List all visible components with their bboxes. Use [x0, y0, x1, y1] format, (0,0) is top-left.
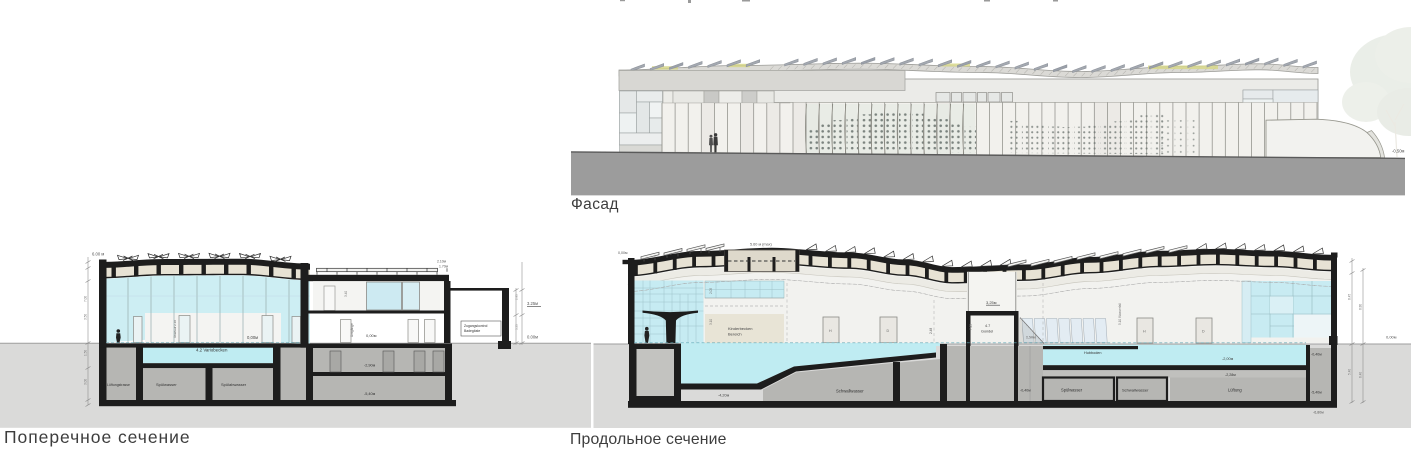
svg-text:Schwallwasser: Schwallwasser: [1122, 388, 1149, 393]
svg-text:-5,40м: -5,40м: [1311, 391, 1322, 395]
svg-text:Lüftungstrasse: Lüftungstrasse: [107, 383, 130, 387]
svg-text:-0,40м: -0,40м: [1311, 353, 1322, 357]
svg-text:-4,20м: -4,20м: [718, 394, 730, 398]
svg-text:Schwallwasser: Schwallwasser: [836, 389, 864, 394]
svg-text:7.00: 7.00: [84, 296, 88, 302]
svg-text:Bereich: Bereich: [728, 332, 742, 337]
svg-text:2.10м: 2.10м: [437, 260, 447, 264]
svg-text:Zugangskontrol: Zugangskontrol: [464, 324, 488, 328]
svg-text:2.48: 2.48: [929, 328, 933, 334]
svg-text:-5,40м: -5,40м: [364, 392, 376, 396]
svg-text:Spülabwasser: Spülabwasser: [221, 382, 247, 387]
svg-text:-2,90м: -2,90м: [364, 364, 376, 368]
svg-text:3,25м: 3,25м: [986, 300, 997, 305]
svg-text:-0,50м: -0,50м: [1392, 149, 1405, 154]
svg-text:2.95: 2.95: [515, 294, 519, 300]
svg-text:H: H: [1143, 330, 1146, 334]
svg-text:7.25: 7.25: [969, 324, 973, 330]
svg-text:0,00м: 0,00м: [1386, 335, 1397, 340]
svg-text:H: H: [829, 329, 832, 333]
svg-text:0,00м: 0,00м: [247, 335, 258, 340]
svg-text:Hubboden: Hubboden: [1084, 351, 1102, 355]
svg-text:8.45: 8.45: [1348, 294, 1352, 300]
svg-text:3.10: 3.10: [709, 319, 713, 325]
svg-text:0,50м: 0,50м: [1026, 336, 1036, 340]
svg-text:3.25: 3.25: [515, 324, 519, 330]
svg-text:D: D: [887, 329, 890, 333]
svg-text:3.00: 3.00: [84, 379, 88, 385]
svg-text:6.00 м: 6.00 м: [92, 252, 104, 257]
svg-text:Spülwasser: Spülwasser: [156, 382, 177, 387]
svg-text:0.00м: 0.00м: [527, 335, 538, 340]
svg-text:3.40: 3.40: [344, 291, 348, 297]
svg-text:4.2 Variobecken: 4.2 Variobecken: [196, 348, 228, 353]
svg-text:0,00м: 0,00м: [366, 333, 377, 338]
svg-text:Überlauf 2.10: Überlauf 2.10: [173, 320, 177, 338]
svg-text:-2,00м: -2,00м: [1222, 357, 1234, 361]
svg-text:8.80: 8.80: [1359, 304, 1363, 310]
svg-text:1.50: 1.50: [84, 350, 88, 356]
svg-text:1.70м: 1.70м: [439, 265, 449, 269]
svg-text:-2,28м: -2,28м: [1225, 373, 1236, 377]
svg-text:Gondel: Gondel: [981, 330, 993, 334]
svg-text:3.50: 3.50: [84, 314, 88, 320]
svg-text:-6,80м: -6,80м: [1313, 411, 1324, 415]
svg-text:5.10 Wasserfall: 5.10 Wasserfall: [1118, 303, 1122, 325]
svg-text:Badegäste: Badegäste: [464, 329, 480, 333]
svg-text:Spülwasser: Spülwasser: [1061, 388, 1083, 393]
svg-text:4.7: 4.7: [985, 324, 990, 328]
svg-text:6.40: 6.40: [1359, 372, 1363, 378]
svg-text:0,00м: 0,00м: [618, 251, 628, 255]
svg-text:5.40: 5.40: [1348, 369, 1352, 375]
svg-text:2.05: 2.05: [709, 288, 713, 294]
svg-text:Lüftung: Lüftung: [1228, 388, 1242, 393]
svg-text:5.60 м (max): 5.60 м (max): [750, 243, 773, 247]
svg-text:3.25м: 3.25м: [527, 301, 538, 306]
svg-text:Umgänge: Umgänge: [350, 323, 354, 337]
svg-text:D: D: [1202, 330, 1205, 334]
svg-text:-0,40м: -0,40м: [1020, 389, 1031, 393]
svg-text:Kinderbecken: Kinderbecken: [728, 326, 752, 331]
